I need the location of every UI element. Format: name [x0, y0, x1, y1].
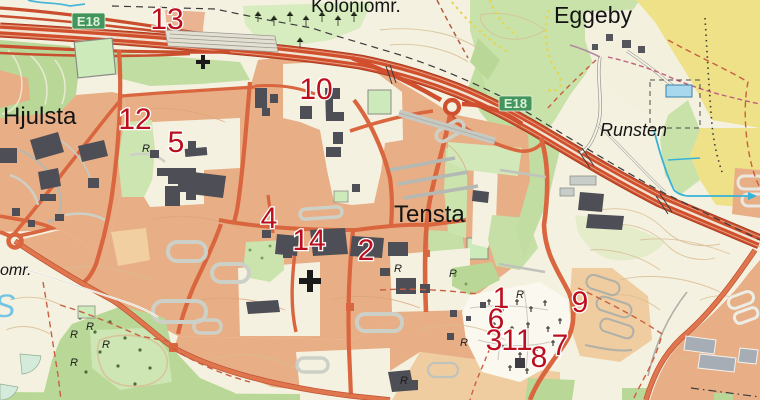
- svg-text:R: R: [516, 289, 524, 301]
- svg-text:5: 5: [168, 126, 185, 159]
- svg-text:R: R: [86, 321, 94, 333]
- svg-text:10: 10: [299, 73, 332, 106]
- svg-text:E18: E18: [504, 96, 527, 111]
- svg-text:2: 2: [358, 234, 375, 267]
- svg-text:S: S: [0, 288, 15, 324]
- svg-text:R: R: [70, 329, 78, 341]
- svg-text:14: 14: [292, 224, 325, 257]
- svg-text:Eggeby: Eggeby: [554, 2, 633, 28]
- svg-text:R: R: [142, 143, 150, 155]
- svg-text:omr.: omr.: [0, 262, 31, 279]
- svg-text:Tensta: Tensta: [394, 201, 465, 228]
- svg-text:Hjulsta: Hjulsta: [3, 103, 77, 130]
- svg-text:12: 12: [118, 103, 151, 136]
- svg-text:4: 4: [261, 202, 278, 235]
- svg-text:7: 7: [552, 329, 569, 362]
- svg-text:R: R: [102, 339, 110, 351]
- svg-text:3: 3: [486, 324, 503, 357]
- svg-text:13: 13: [150, 3, 183, 36]
- svg-text:Koloniomr.: Koloniomr.: [311, 0, 401, 17]
- svg-text:R: R: [394, 263, 402, 275]
- svg-text:11: 11: [501, 324, 532, 357]
- svg-text:R: R: [70, 357, 78, 369]
- svg-text:Runsten: Runsten: [600, 120, 667, 140]
- svg-text:E18: E18: [77, 14, 100, 29]
- svg-text:9: 9: [572, 286, 589, 319]
- svg-text:R: R: [460, 337, 468, 349]
- svg-text:R: R: [400, 375, 408, 387]
- svg-text:8: 8: [531, 341, 548, 374]
